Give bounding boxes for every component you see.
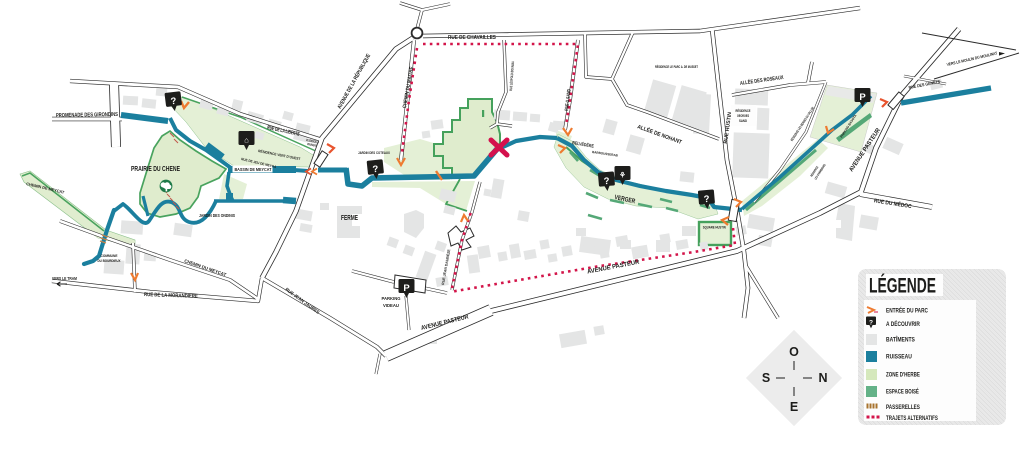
svg-text:ZONE D'HERBE: ZONE D'HERBE bbox=[886, 372, 920, 379]
svg-text:RUE DE CHAVAILLES: RUE DE CHAVAILLES bbox=[448, 35, 496, 42]
svg-text:PARKING: PARKING bbox=[381, 296, 401, 301]
svg-text:?: ? bbox=[703, 194, 710, 205]
svg-text:RÉSIDENCE LE PARC A. DE MUSSET: RÉSIDENCE LE PARC A. DE MUSSET bbox=[655, 63, 698, 69]
svg-text:SQUARE HUSTIN: SQUARE HUSTIN bbox=[703, 225, 727, 229]
svg-text:PROMENADE DES GIRONDINS: PROMENADE DES GIRONDINS bbox=[56, 111, 119, 119]
svg-text:JARDIN DES COTEAUX: JARDIN DES COTEAUX bbox=[358, 151, 391, 156]
svg-text:SAND: SAND bbox=[739, 119, 748, 123]
svg-text:FERME: FERME bbox=[341, 215, 358, 222]
svg-text:PASSERELLES: PASSERELLES bbox=[886, 405, 920, 412]
svg-text:GEORGES: GEORGES bbox=[737, 114, 749, 119]
svg-text:P: P bbox=[859, 92, 866, 103]
svg-text:TRAJETS ALTERNATIFS: TRAJETS ALTERNATIFS bbox=[886, 415, 938, 422]
svg-text:RUISSEAU: RUISSEAU bbox=[886, 354, 912, 361]
svg-text:VERS LE TRAM: VERS LE TRAM bbox=[52, 276, 77, 282]
svg-text:BASSIN DE MEYCAT: BASSIN DE MEYCAT bbox=[234, 167, 271, 172]
svg-text:COMMUNE: COMMUNE bbox=[101, 254, 119, 258]
svg-text:LÉGENDE: LÉGENDE bbox=[869, 272, 936, 297]
svg-text:BATÎMENTS: BATÎMENTS bbox=[886, 335, 915, 344]
svg-text:ENTRÉE DU PARC: ENTRÉE DU PARC bbox=[886, 306, 928, 315]
svg-text:A DÉCOUVRIR: A DÉCOUVRIR bbox=[886, 319, 920, 328]
svg-text:VIDEAU: VIDEAU bbox=[383, 303, 399, 308]
svg-text:?: ? bbox=[869, 319, 873, 326]
svg-text:DU BOURDIEUX: DU BOURDIEUX bbox=[98, 259, 122, 263]
svg-text:JARDIN DES ONDINIS: JARDIN DES ONDINIS bbox=[199, 214, 235, 218]
svg-text:P: P bbox=[403, 283, 410, 294]
svg-text:⌂: ⌂ bbox=[244, 136, 249, 145]
svg-text:ESPACE BOISÉ: ESPACE BOISÉ bbox=[886, 387, 919, 396]
svg-text:O: O bbox=[789, 345, 799, 359]
svg-text:⚘: ⚘ bbox=[619, 171, 626, 180]
svg-text:?: ? bbox=[603, 176, 610, 187]
svg-text:N: N bbox=[818, 371, 827, 385]
svg-text:RÉSIDENCE: RÉSIDENCE bbox=[736, 107, 751, 113]
svg-text:PRAIRIE DU CHENE: PRAIRIE DU CHENE bbox=[131, 165, 180, 173]
svg-text:E: E bbox=[790, 400, 798, 414]
svg-text:S: S bbox=[762, 371, 770, 385]
